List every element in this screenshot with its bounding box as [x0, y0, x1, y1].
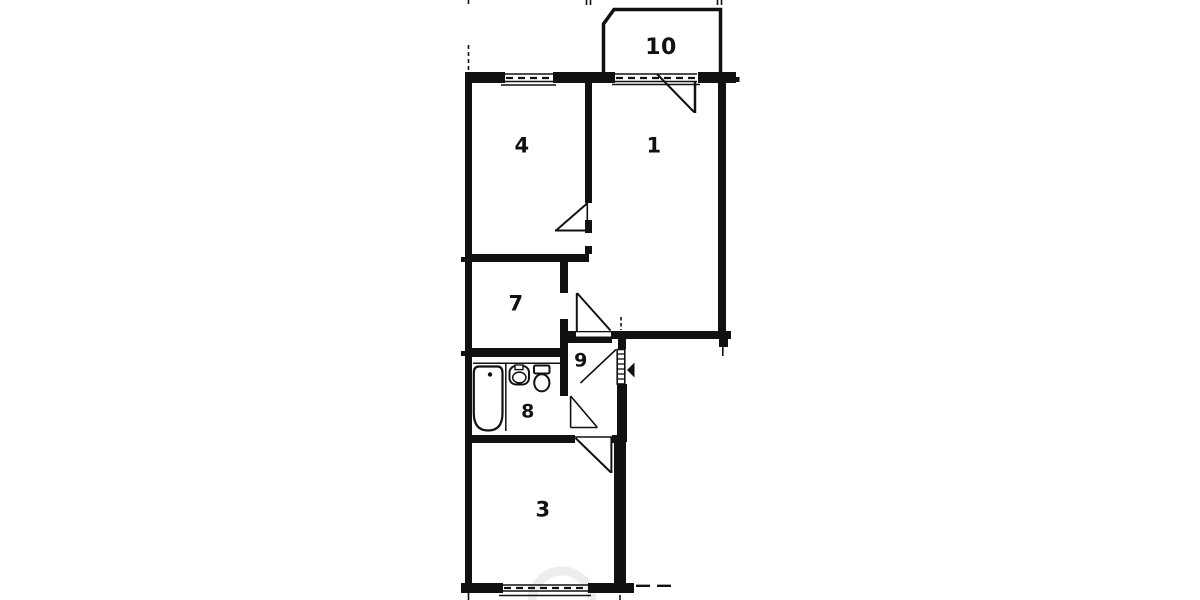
door-entrance: [581, 350, 635, 385]
bathroom-fixtures: [473, 363, 560, 431]
sink-icon: [510, 365, 530, 385]
entrance-arrow-icon: [627, 363, 635, 378]
wall-top-mid: [553, 72, 615, 83]
room-label-8: 8: [521, 403, 535, 422]
room-label-4: 4: [514, 136, 529, 157]
window-room3: [499, 585, 591, 596]
floor-plan-canvas: 10 4 1 7 9 8 3: [0, 0, 1200, 600]
room-label-1: 1: [646, 136, 661, 157]
room-label-9: 9: [574, 352, 588, 371]
door-bathroom: [571, 396, 598, 428]
dimension-marks: [469, 0, 723, 600]
wall-left: [465, 72, 472, 593]
wall-bath-top: [465, 348, 563, 357]
wall-room7-right-lower: [560, 319, 568, 348]
walls: [461, 72, 740, 593]
wall-room1-corner-block: [719, 338, 728, 347]
wall-room4-door-stub2: [585, 246, 592, 254]
wall-bath-bottom-right: [612, 435, 618, 443]
wall-top-right-nub: [736, 77, 740, 82]
window-balcony: [612, 74, 700, 85]
door-hall-room1: [577, 293, 611, 331]
door-room4: [555, 203, 588, 231]
bathtub-icon: [474, 367, 503, 431]
room-label-3: 3: [535, 500, 550, 521]
wall-top-right: [698, 72, 736, 83]
window-room4: [501, 74, 556, 85]
wall-room1-right: [718, 83, 726, 338]
wall-hall-right: [617, 384, 627, 442]
door-room3: [575, 437, 612, 473]
wall-room3-right: [614, 440, 626, 583]
toilet-icon: [534, 366, 550, 392]
wall-room4-room7-nub: [461, 257, 465, 262]
floor-plan-drawing: [0, 0, 1200, 600]
wall-room7-right-upper: [560, 262, 568, 293]
room-label-7: 7: [508, 294, 523, 315]
wall-bath-bottom-left: [465, 435, 575, 443]
wall-hall-top-opening: [576, 332, 611, 336]
wall-room4-room1: [585, 83, 592, 203]
wall-room1-bottom: [612, 331, 731, 339]
wall-room4-room7: [465, 254, 589, 262]
door-balcony: [657, 74, 695, 113]
room-label-balcony: 10: [645, 37, 677, 59]
wall-bottom-right: [588, 583, 634, 593]
wall-bottom-left: [461, 583, 503, 593]
wall-bath-right: [560, 348, 568, 396]
wall-bath-top-nub: [461, 351, 465, 356]
